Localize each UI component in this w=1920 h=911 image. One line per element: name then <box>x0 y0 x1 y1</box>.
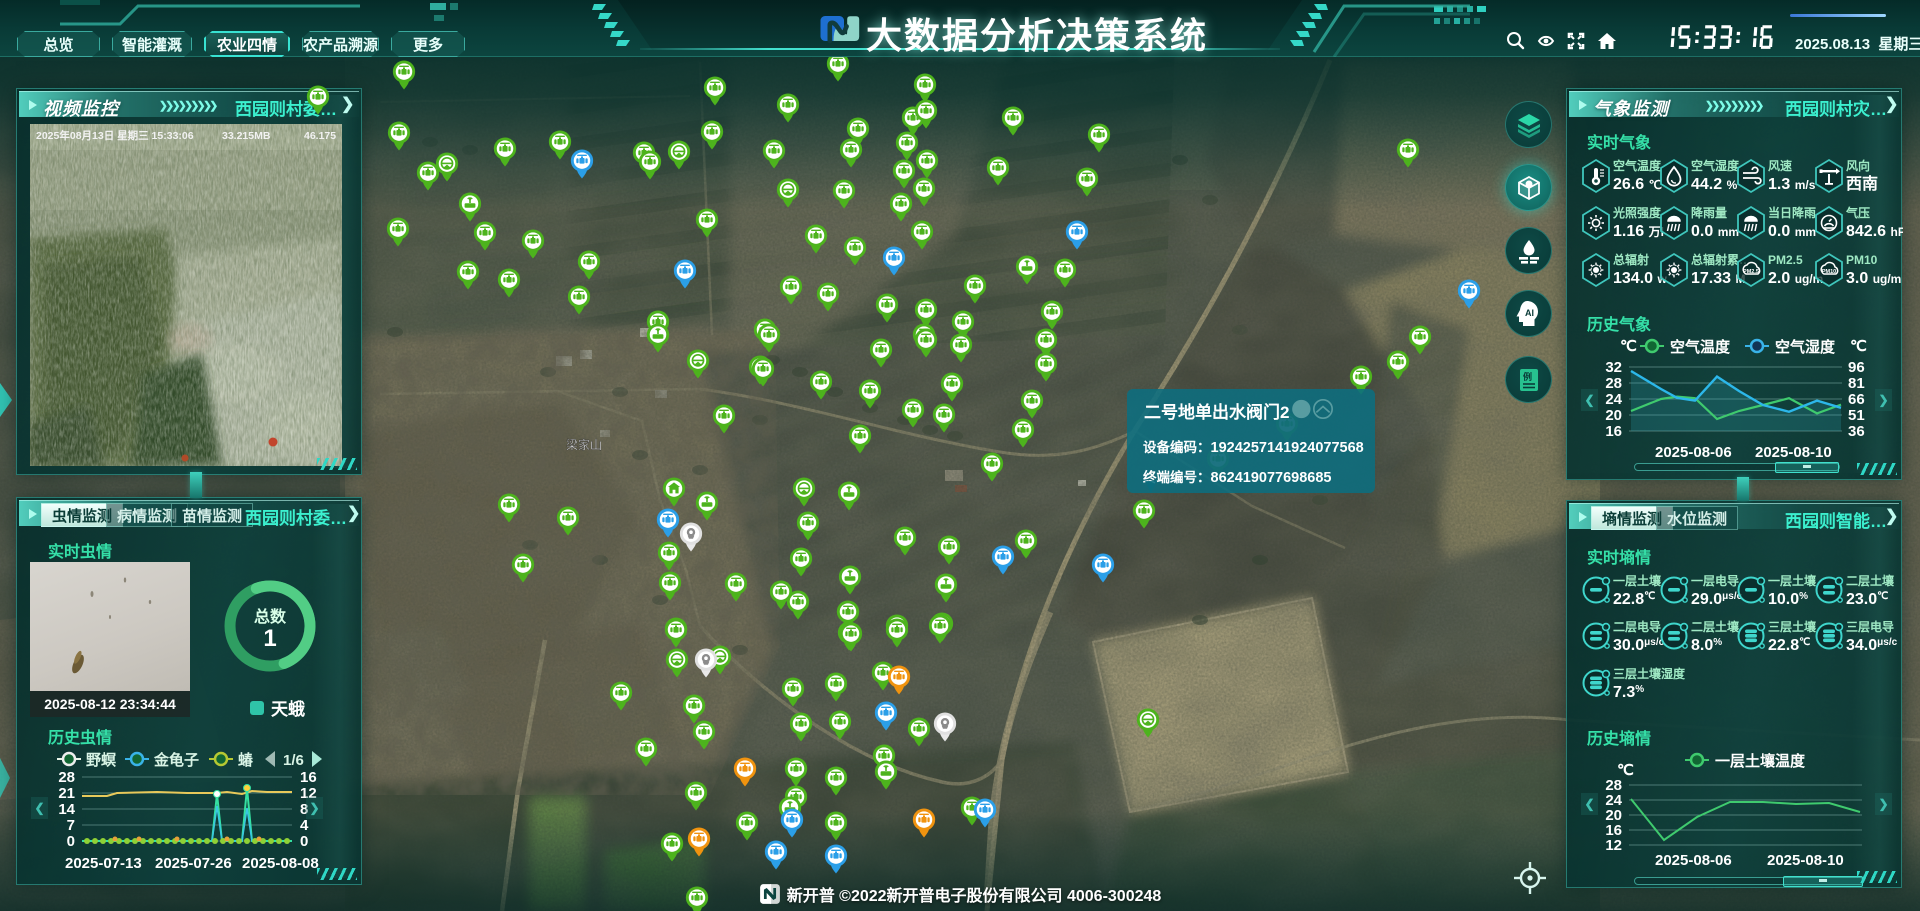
svg-text:三层土壤: 三层土壤 <box>1768 619 1817 634</box>
svg-text:PM2.5: PM2.5 <box>1743 269 1759 275</box>
svg-text:7.3%: 7.3% <box>1613 684 1644 701</box>
svg-text:1.3 m/s: 1.3 m/s <box>1768 176 1816 193</box>
svg-text:12: 12 <box>1605 837 1622 854</box>
svg-text:34.0μs/c: 34.0μs/c <box>1846 637 1898 654</box>
svg-text:金龟子: 金龟子 <box>153 751 199 769</box>
svg-text:4: 4 <box>300 817 309 834</box>
svg-text:32: 32 <box>1605 359 1622 376</box>
svg-text:总数: 总数 <box>254 607 287 626</box>
svg-text:2025年08月13日 星期三 15:33:06: 2025年08月13日 星期三 15:33:06 <box>36 129 194 142</box>
svg-text:10.0%: 10.0% <box>1768 591 1808 608</box>
svg-text:23.0℃: 23.0℃ <box>1846 591 1888 608</box>
svg-text:51: 51 <box>1848 407 1865 424</box>
svg-text:26.6 ℃: 26.6 ℃ <box>1613 176 1662 193</box>
svg-text:1.16 万l: 1.16 万l <box>1613 223 1664 240</box>
svg-text:21: 21 <box>58 785 75 802</box>
svg-text:30.0μs/c: 30.0μs/c <box>1613 637 1665 654</box>
svg-text:16: 16 <box>1605 423 1622 440</box>
svg-text:二层土壤: 二层土壤 <box>1846 573 1895 588</box>
svg-text:134.0 w: 134.0 w <box>1613 270 1667 287</box>
svg-text:22.8℃: 22.8℃ <box>1768 637 1810 654</box>
svg-text:AI: AI <box>1525 308 1534 318</box>
svg-text:2025-07-13: 2025-07-13 <box>65 855 142 872</box>
svg-text:36: 36 <box>1848 423 1865 440</box>
svg-text:降雨量: 降雨量 <box>1691 205 1727 220</box>
svg-text:PM10: PM10 <box>1846 253 1878 267</box>
svg-text:24: 24 <box>1605 391 1622 408</box>
svg-text:29.0μs/c: 29.0μs/c <box>1691 591 1743 608</box>
svg-text:1: 1 <box>263 625 276 652</box>
svg-text:一层土壤温度: 一层土壤温度 <box>1715 752 1806 770</box>
svg-text:22.8℃: 22.8℃ <box>1613 591 1655 608</box>
svg-text:14: 14 <box>58 801 75 818</box>
svg-text:0.0 mm: 0.0 mm <box>1768 223 1816 240</box>
svg-text:2025-07-26: 2025-07-26 <box>155 855 232 872</box>
svg-text:28: 28 <box>1605 375 1622 392</box>
svg-text:空气湿度: 空气湿度 <box>1691 158 1740 173</box>
svg-text:2025-08-06: 2025-08-06 <box>1655 852 1732 869</box>
svg-text:空气温度: 空气温度 <box>1613 158 1662 173</box>
svg-text:三层电导: 三层电导 <box>1846 619 1894 634</box>
svg-text:一层土壤: 一层土壤 <box>1613 573 1662 588</box>
svg-text:2025-08-10: 2025-08-10 <box>1767 852 1844 869</box>
svg-text:2025-08-10: 2025-08-10 <box>1755 444 1832 461</box>
svg-text:总辐射: 总辐射 <box>1613 252 1649 267</box>
svg-text:0: 0 <box>67 833 75 850</box>
svg-text:风速: 风速 <box>1768 158 1792 173</box>
svg-text:28: 28 <box>58 769 75 786</box>
svg-text:野螟: 野螟 <box>86 751 116 769</box>
svg-text:℃: ℃ <box>1850 338 1867 355</box>
svg-text:西南: 西南 <box>1846 174 1878 193</box>
svg-text:33.215MB: 33.215MB <box>222 130 271 142</box>
svg-text:7: 7 <box>67 817 75 834</box>
svg-text:2025-08-06: 2025-08-06 <box>1655 444 1732 461</box>
svg-text:气压: 气压 <box>1845 205 1870 220</box>
svg-text:46.175: 46.175 <box>304 130 336 142</box>
svg-text:一层电导: 一层电导 <box>1691 573 1739 588</box>
svg-text:66: 66 <box>1848 391 1865 408</box>
svg-text:PM10: PM10 <box>1822 269 1836 275</box>
svg-text:例: 例 <box>1523 371 1532 382</box>
svg-text:当日降雨: 当日降雨 <box>1768 205 1816 220</box>
svg-text:空气湿度: 空气湿度 <box>1775 338 1836 356</box>
svg-text:二层土壤: 二层土壤 <box>1691 619 1740 634</box>
svg-text:一层土壤: 一层土壤 <box>1768 573 1817 588</box>
svg-text:2025-08-08: 2025-08-08 <box>242 855 319 872</box>
svg-text:44.2 %: 44.2 % <box>1691 176 1738 193</box>
svg-text:1/6: 1/6 <box>283 752 304 769</box>
svg-text:蝽: 蝽 <box>238 751 254 769</box>
svg-text:96: 96 <box>1848 359 1865 376</box>
svg-text:20: 20 <box>1605 407 1622 424</box>
svg-text:三层土壤湿度: 三层土壤湿度 <box>1613 666 1686 681</box>
svg-text:81: 81 <box>1848 375 1865 392</box>
svg-text:842.6 hP: 842.6 hP <box>1846 223 1903 240</box>
svg-text:光照强度: 光照强度 <box>1612 205 1662 220</box>
svg-text:8.0%: 8.0% <box>1691 637 1722 654</box>
svg-text:2.0 ug/m: 2.0 ug/m <box>1768 270 1823 287</box>
svg-text:二层电导: 二层电导 <box>1613 619 1661 634</box>
svg-text:16: 16 <box>300 769 317 786</box>
svg-text:0.0 mm: 0.0 mm <box>1691 223 1739 240</box>
svg-text:℃: ℃ <box>1620 338 1637 355</box>
svg-text:PM2.5: PM2.5 <box>1768 253 1803 267</box>
svg-text:空气温度: 空气温度 <box>1670 338 1731 356</box>
svg-text:3.0 ug/m: 3.0 ug/m <box>1846 270 1901 287</box>
svg-text:0: 0 <box>300 833 308 850</box>
svg-text:风向: 风向 <box>1846 158 1870 173</box>
